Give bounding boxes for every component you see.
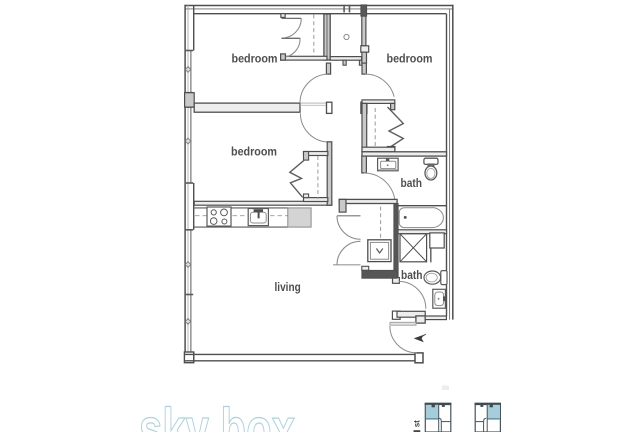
svg-text:bedroom: bedroom [231, 146, 277, 158]
svg-text:bath: bath [401, 270, 423, 282]
svg-text:bath: bath [401, 178, 423, 190]
svg-text:bedroom: bedroom [232, 53, 278, 65]
svg-text:bedroom: bedroom [387, 53, 433, 65]
svg-text:living: living [275, 282, 301, 294]
svg-text:st: st [413, 420, 422, 427]
svg-text:sky box: sky box [139, 397, 295, 432]
